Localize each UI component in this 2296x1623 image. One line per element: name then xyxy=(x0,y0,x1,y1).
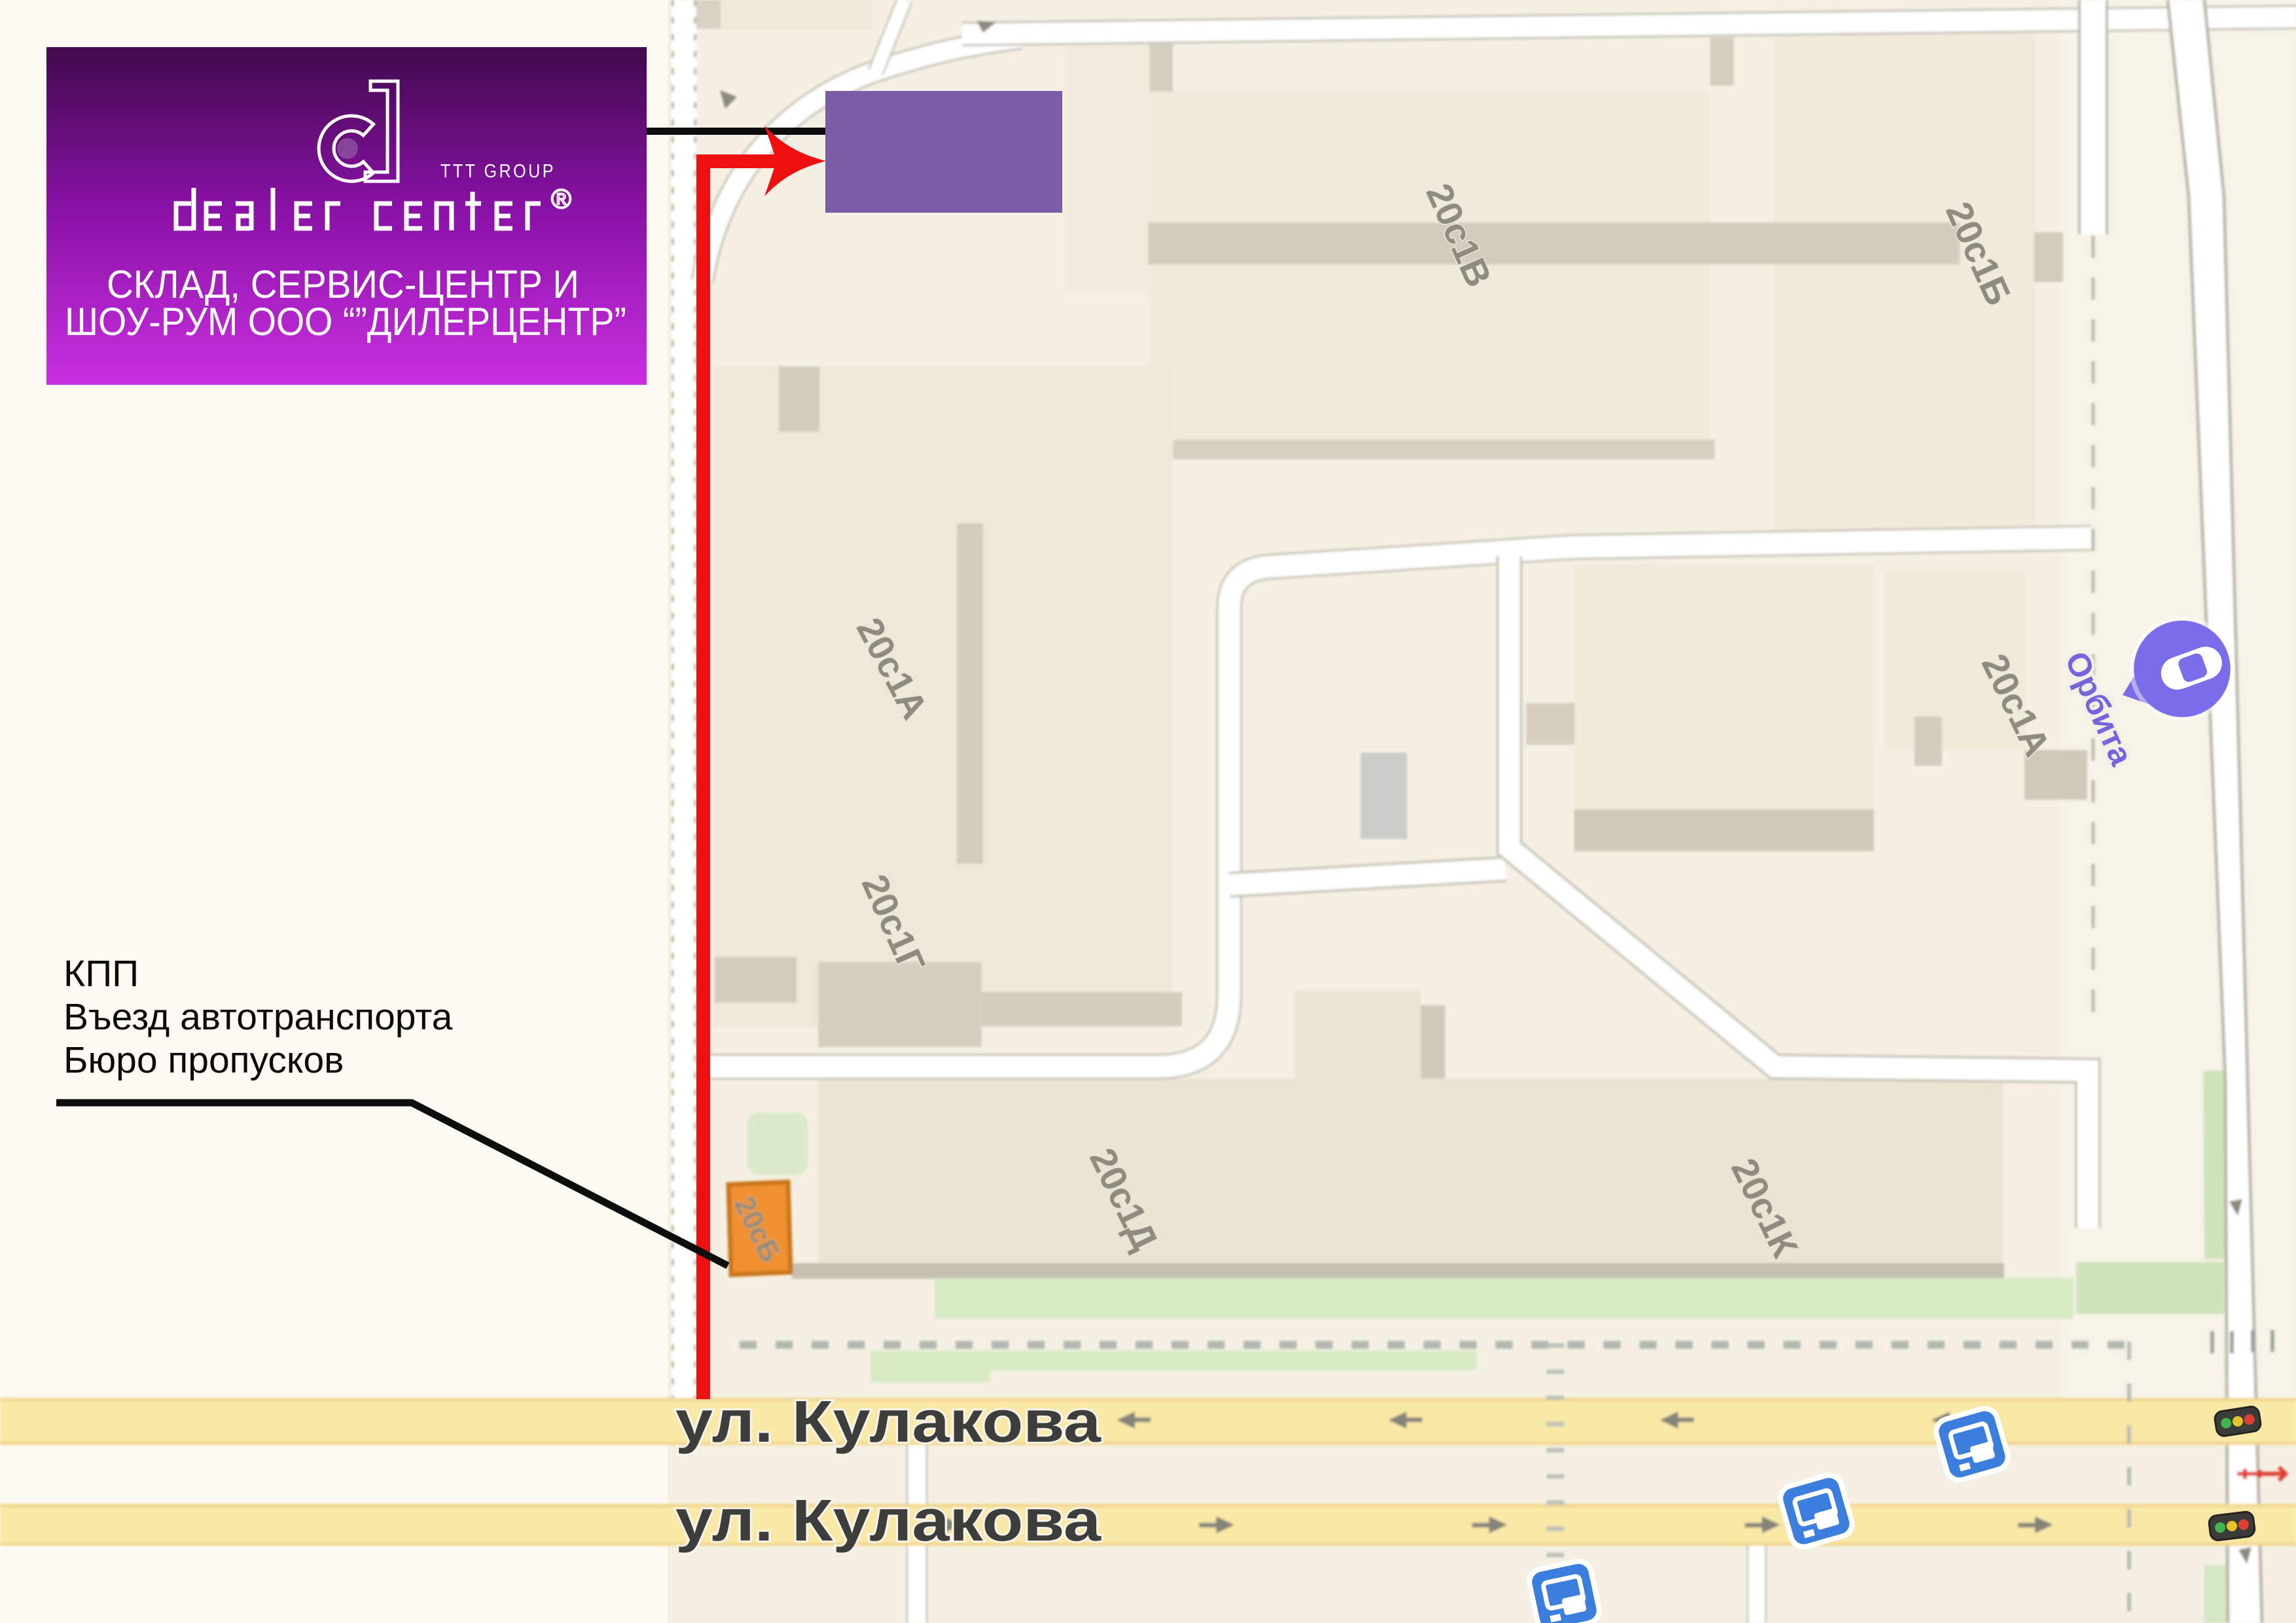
svg-text:TTT GROUP: TTT GROUP xyxy=(440,161,556,182)
svg-text:ШОУ-РУМ ООО “”ДИЛЕРЦЕНТР”: ШОУ-РУМ ООО “”ДИЛЕРЦЕНТР” xyxy=(65,300,626,344)
svg-text:Бюро пропусков: Бюро пропусков xyxy=(63,1039,344,1081)
svg-text:®: ® xyxy=(551,183,571,214)
svg-text:КПП: КПП xyxy=(63,953,139,995)
svg-text:ул. Кулакова: ул. Кулакова xyxy=(675,1488,1102,1554)
svg-text:ул. Кулакова: ул. Кулакова xyxy=(675,1389,1102,1455)
svg-text:Въезд автотранспорта: Въезд автотранспорта xyxy=(63,996,453,1038)
